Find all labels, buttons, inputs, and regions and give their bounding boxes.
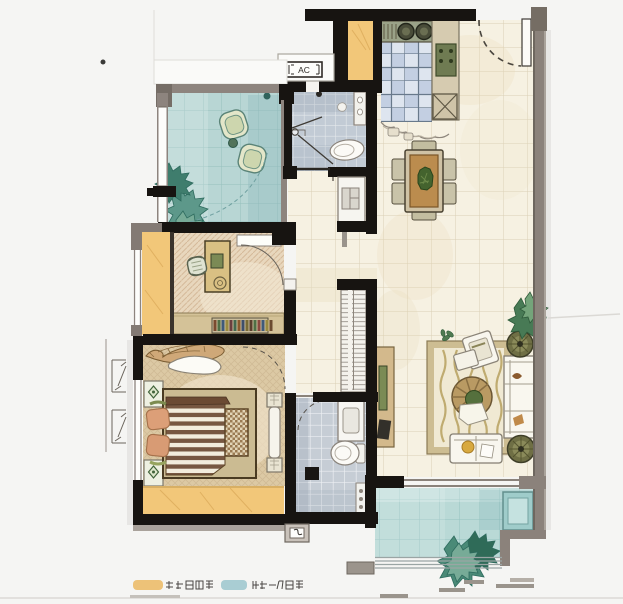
svg-text:AC: AC <box>298 65 310 75</box>
